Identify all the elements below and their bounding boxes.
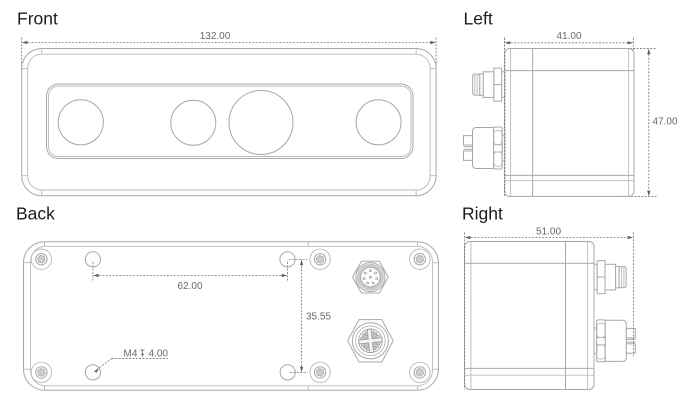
svg-text:Front: Front: [17, 9, 58, 29]
svg-text:4.00: 4.00: [149, 349, 169, 360]
svg-text:M4: M4: [124, 349, 138, 360]
svg-text:41.00: 41.00: [556, 31, 581, 42]
svg-text:35.55: 35.55: [306, 311, 331, 322]
svg-text:132.00: 132.00: [200, 31, 231, 42]
svg-text:62.00: 62.00: [177, 281, 202, 292]
svg-text:Left: Left: [464, 9, 493, 29]
svg-text:47.00: 47.00: [653, 117, 678, 128]
svg-text:Back: Back: [16, 204, 55, 224]
svg-text:Right: Right: [462, 204, 503, 224]
svg-text:51.00: 51.00: [536, 226, 561, 237]
